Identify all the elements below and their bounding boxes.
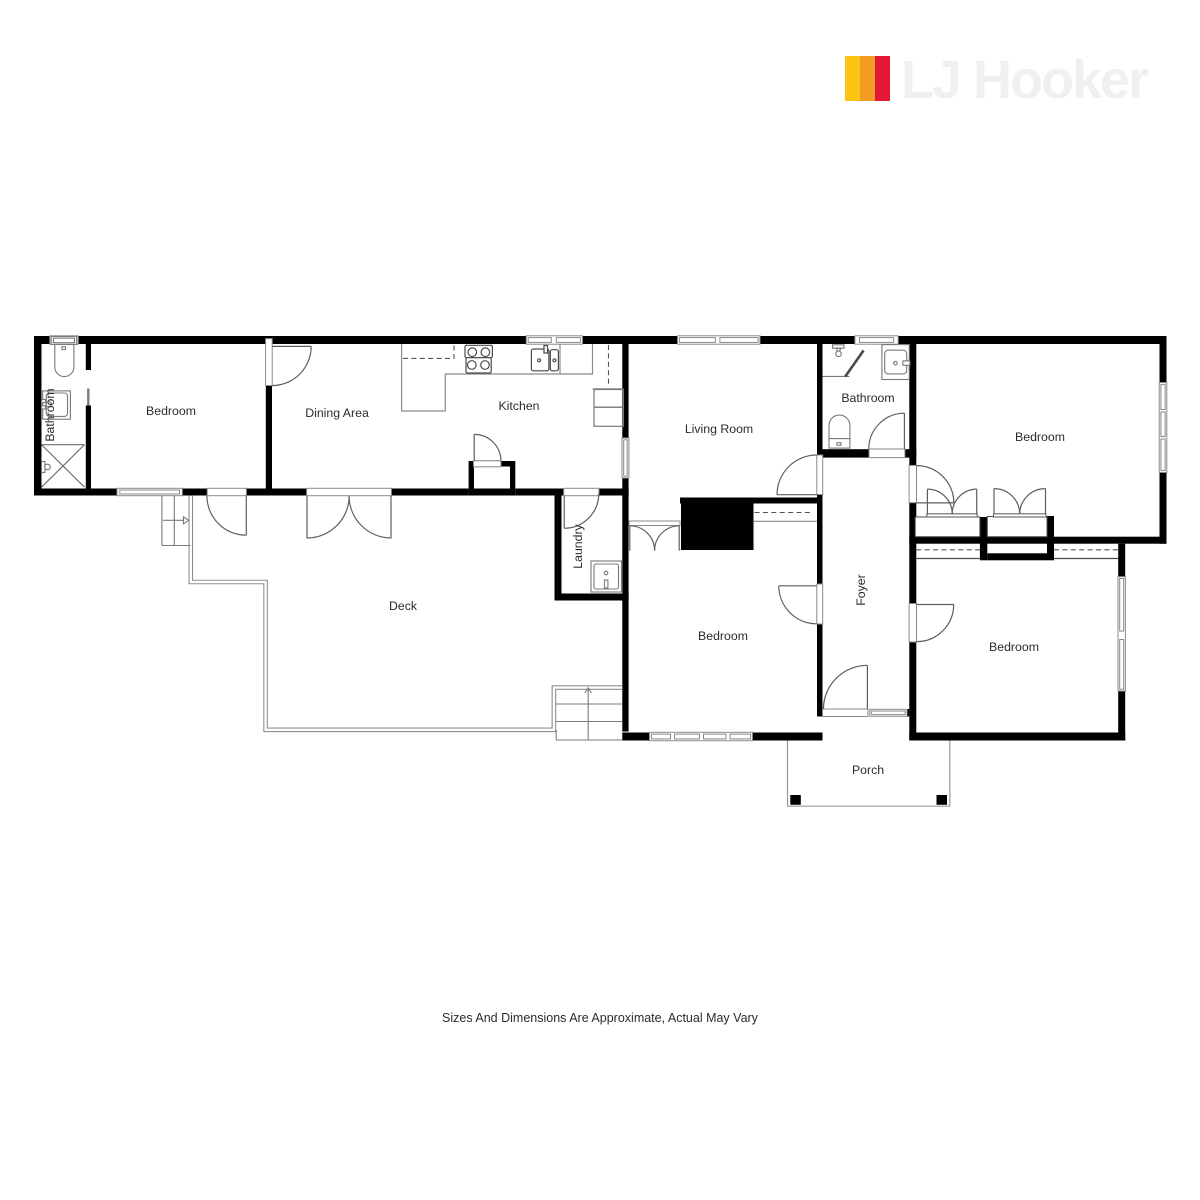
svg-text:Sizes And Dimensions Are Appro: Sizes And Dimensions Are Approximate, Ac… — [442, 1011, 759, 1025]
svg-text:Living Room: Living Room — [685, 422, 753, 436]
svg-text:Bedroom: Bedroom — [698, 629, 748, 643]
svg-text:Bedroom: Bedroom — [989, 640, 1039, 654]
svg-text:Laundry: Laundry — [571, 523, 585, 568]
svg-text:Bathroom: Bathroom — [841, 391, 894, 405]
svg-text:Kitchen: Kitchen — [498, 399, 539, 413]
svg-text:Deck: Deck — [389, 599, 418, 613]
svg-text:Foyer: Foyer — [854, 574, 868, 605]
svg-text:Bedroom: Bedroom — [1015, 430, 1065, 444]
svg-text:Dining Area: Dining Area — [305, 406, 369, 420]
svg-text:Porch: Porch — [852, 763, 884, 777]
svg-text:LJ Hooker: LJ Hooker — [901, 50, 1149, 110]
svg-text:Bathroom: Bathroom — [43, 388, 57, 441]
svg-text:Bedroom: Bedroom — [146, 404, 196, 418]
